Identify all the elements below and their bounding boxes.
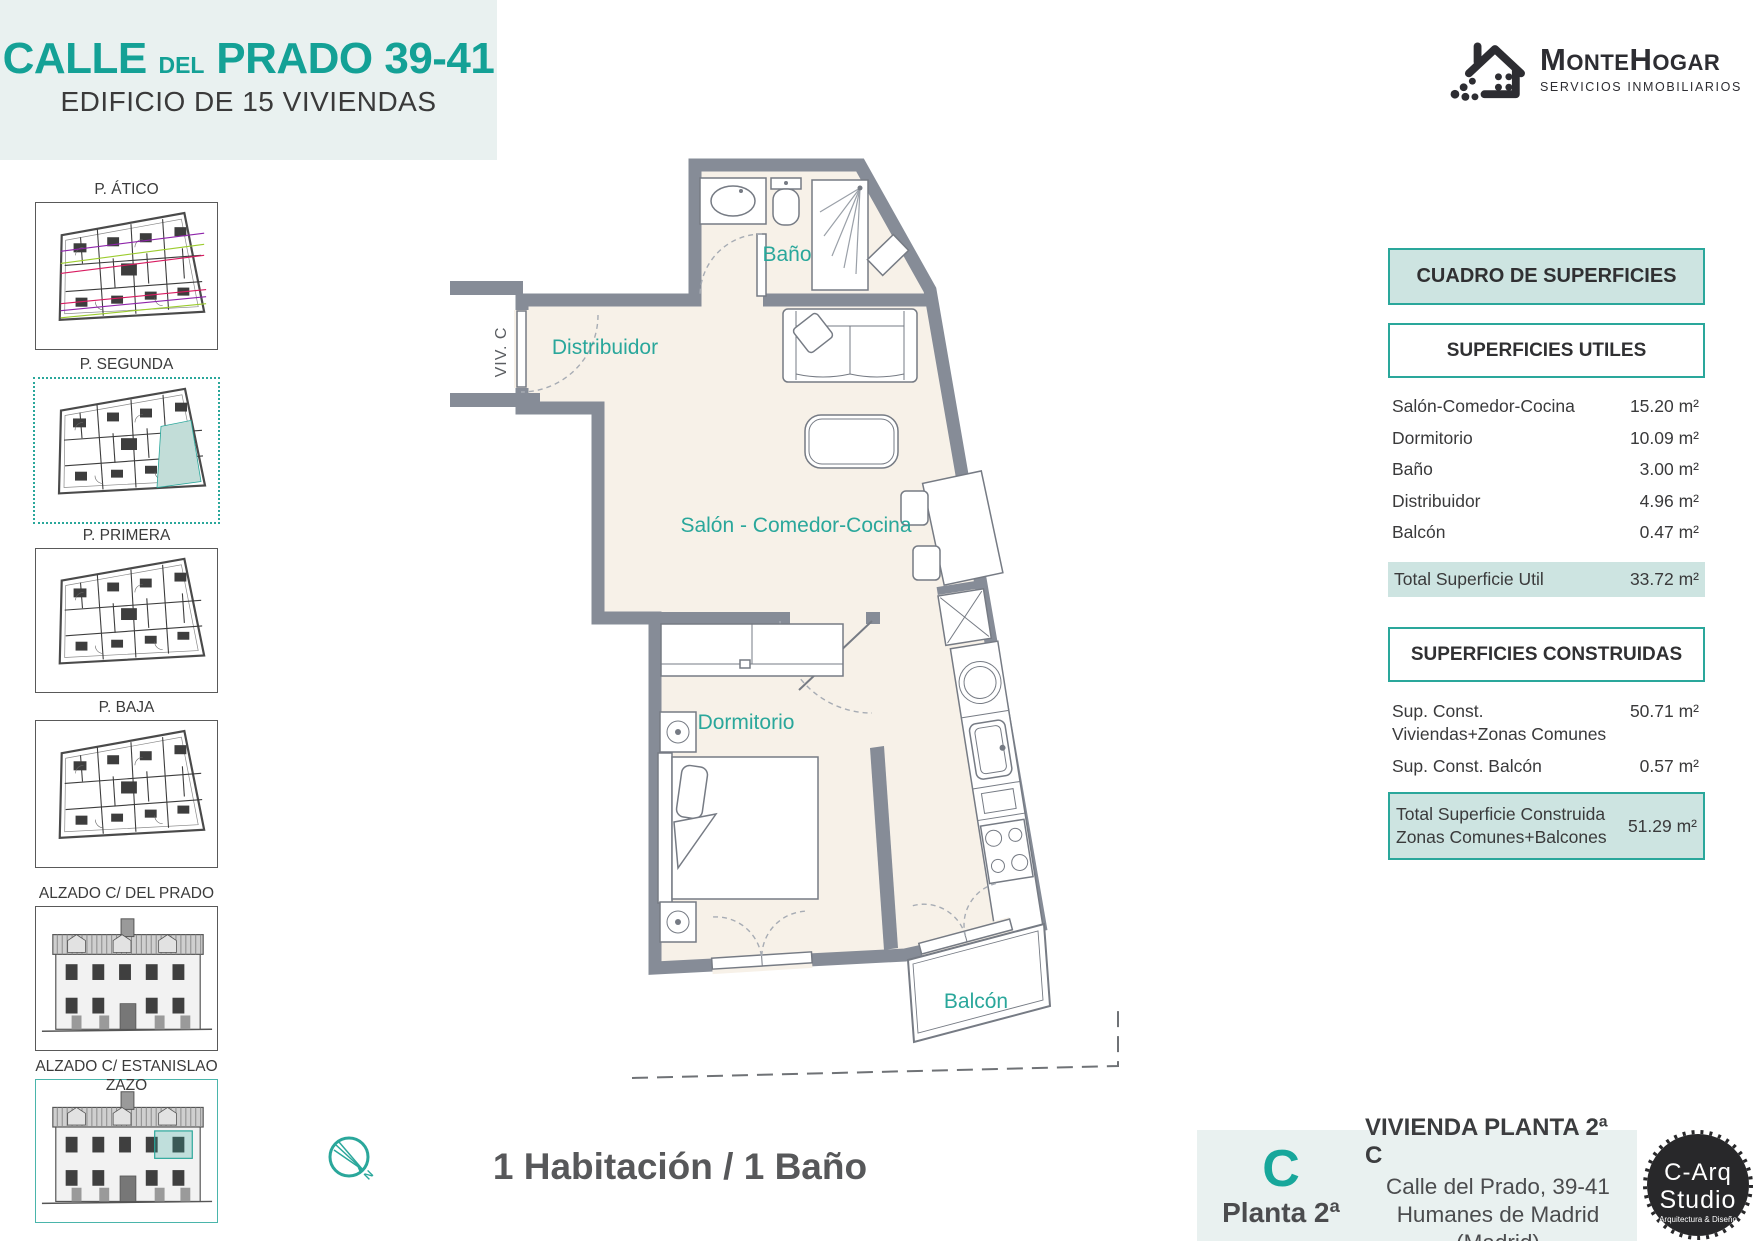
room-label-salon: Salón - Comedor-Cocina <box>680 514 911 537</box>
table-row: Distribuidor 4.96 m² <box>1388 491 1705 523</box>
sidebar-item-p-segunda: P. SEGUNDA <box>33 355 220 524</box>
studio-logo-line2: Studio <box>1660 1186 1737 1214</box>
total-construida-value: 51.29 m² <box>1628 816 1697 837</box>
total-util-value: 33.72 m² <box>1630 569 1699 590</box>
sidebar-item-alzado-del-prado: ALZADO C/ DEL PRADO <box>35 884 218 1051</box>
superficies-utiles-rows: Salón-Comedor-Cocina 15.20 m² Dormitorio… <box>1388 396 1705 554</box>
thumb-p-baja[interactable] <box>35 720 218 868</box>
brand-name-hogar: Hogar <box>1629 42 1720 77</box>
total-superficie-construida-row: Total Superficie Construida Zonas Comune… <box>1388 792 1705 860</box>
superficies-utiles-title: SUPERFICIES UTILES <box>1388 323 1705 378</box>
plan-thumbnail-primera <box>36 549 217 692</box>
address-line1: Calle del Prado, 39-41 <box>1386 1174 1610 1199</box>
address-line2: Humanes de Madrid (Madrid) <box>1397 1202 1600 1241</box>
title-calle: CALLE <box>3 34 147 83</box>
dwelling-title: VIVIENDA PLANTA 2ª C <box>1365 1114 1631 1170</box>
row-value: 0.57 m² <box>1640 756 1699 777</box>
wall-entry-stub-top <box>450 281 523 295</box>
elevation-thumbnail-zazo <box>36 1080 217 1222</box>
north-compass-icon: N <box>322 1132 380 1188</box>
nightstand <box>660 712 696 752</box>
thumb-label-p-atico: P. ÁTICO <box>35 180 218 199</box>
dwelling-letter-block: C Planta 2ª <box>1197 1130 1365 1241</box>
bed <box>658 753 818 903</box>
table-row: Salón-Comedor-Cocina 15.20 m² <box>1388 396 1705 428</box>
thumb-label-alzado-prado: ALZADO C/ DEL PRADO <box>35 884 218 903</box>
row-value: 15.20 m² <box>1630 396 1699 417</box>
title-del: DEL <box>158 52 204 78</box>
table-row: Baño 3.00 m² <box>1388 459 1705 491</box>
nightstand <box>660 902 696 942</box>
coffee-table <box>805 415 898 468</box>
row-label: Balcón <box>1392 522 1446 543</box>
sidebar-item-p-baja: P. BAJA <box>35 698 218 868</box>
thumb-label-p-primera: P. PRIMERA <box>35 526 218 545</box>
thumb-p-segunda-selected[interactable] <box>33 377 220 524</box>
row-label: Baño <box>1392 459 1433 480</box>
table-row: Dormitorio 10.09 m² <box>1388 428 1705 460</box>
elevation-thumbnail-prado <box>36 907 217 1050</box>
c-arq-studio-logo: C-Arq Studio Arquitectura & Diseño <box>1641 1128 1754 1241</box>
wall-door-stub <box>866 612 880 624</box>
thumb-label-alzado-zazo: ALZADO C/ ESTANISLAO ZAZO <box>35 1057 218 1076</box>
wardrobe <box>661 624 843 676</box>
room-label-balcon: Balcón <box>944 990 1008 1013</box>
montehogar-logo: MonteHogar SERVICIOS INMOBILIARIOS <box>1448 32 1742 106</box>
title-block: CALLE DEL PRADO 39-41 EDIFICIO DE 15 VIV… <box>0 0 497 160</box>
total-superficie-util-row: Total Superficie Util 33.72 m² <box>1388 562 1705 597</box>
superficies-construidas-rows: Sup. Const. Viviendas+Zonas Comunes 50.7… <box>1388 700 1705 787</box>
bathroom-sink <box>700 178 766 224</box>
house-icon <box>1448 32 1528 106</box>
dwelling-letter: C <box>1262 1143 1300 1195</box>
row-value: 10.09 m² <box>1630 428 1699 449</box>
thumb-alzado-prado[interactable] <box>35 906 218 1051</box>
dwelling-address: Calle del Prado, 39-41 Humanes de Madrid… <box>1365 1173 1631 1241</box>
table-row: Balcón 0.47 m² <box>1388 522 1705 554</box>
room-label-bano: Baño <box>762 243 811 266</box>
sidebar-item-p-primera: P. PRIMERA <box>35 526 218 693</box>
toilet <box>771 178 801 225</box>
studio-logo-line3: Arquitectura & Diseño <box>1659 1215 1737 1224</box>
plan-thumbnail-segunda <box>35 379 218 522</box>
rooms-summary: 1 Habitación / 1 Baño <box>480 1146 880 1188</box>
row-value: 3.00 m² <box>1640 459 1699 480</box>
thumb-p-primera[interactable] <box>35 548 218 693</box>
row-label: Sup. Const. Balcón <box>1392 756 1542 777</box>
shower <box>812 180 868 290</box>
dwelling-address-block: VIVIENDA PLANTA 2ª C Calle del Prado, 39… <box>1365 1130 1637 1241</box>
total-util-label: Total Superficie Util <box>1394 569 1544 590</box>
thumb-label-p-baja: P. BAJA <box>35 698 218 717</box>
room-label-distribuidor: Distribuidor <box>552 336 658 359</box>
sidebar-item-p-atico: P. ÁTICO <box>35 180 218 350</box>
unit-label-viv-c: VIV. C <box>493 327 510 378</box>
superficies-construidas-title: SUPERFICIES CONSTRUIDAS <box>1388 627 1705 682</box>
row-label: Dormitorio <box>1392 428 1473 449</box>
dwelling-info-panel: C Planta 2ª VIVIENDA PLANTA 2ª C Calle d… <box>1197 1130 1637 1241</box>
property-boundary-dashed <box>632 1006 1118 1078</box>
total-construida-label-line1: Total Superficie Construida <box>1396 804 1605 824</box>
wall-entry-stub-bottom <box>450 393 540 407</box>
row-value: 50.71 m² <box>1630 700 1699 723</box>
brand-tagline: SERVICIOS INMOBILIARIOS <box>1540 80 1742 94</box>
brand-name-monte: Monte <box>1540 42 1629 77</box>
page-subtitle: EDIFICIO DE 15 VIVIENDAS <box>0 86 497 118</box>
plan-thumbnail-atico <box>36 203 217 349</box>
sofa <box>783 309 917 382</box>
thumb-p-atico[interactable] <box>35 202 218 350</box>
title-prado: PRADO 39-41 <box>216 34 494 83</box>
table-row: Sup. Const. Viviendas+Zonas Comunes 50.7… <box>1388 700 1705 752</box>
row-label: Distribuidor <box>1392 491 1481 512</box>
dwelling-floor: Planta 2ª <box>1222 1197 1340 1229</box>
wall-bath-salon <box>763 294 937 307</box>
studio-logo-line1: C-Arq <box>1664 1159 1732 1186</box>
table-row: Sup. Const. Balcón 0.57 m² <box>1388 756 1705 787</box>
total-construida-label: Total Superficie Construida Zonas Comune… <box>1396 803 1607 849</box>
total-construida-label-line2: Zonas Comunes+Balcones <box>1396 827 1607 847</box>
thumb-alzado-zazo[interactable] <box>35 1079 218 1223</box>
thumb-label-p-segunda: P. SEGUNDA <box>33 355 220 374</box>
row-label: Sup. Const. Viviendas+Zonas Comunes <box>1392 700 1612 746</box>
row-value: 4.96 m² <box>1640 491 1699 512</box>
plan-thumbnail-baja <box>36 721 217 867</box>
room-label-dormitorio: Dormitorio <box>698 711 795 734</box>
entry-door-leaf <box>517 311 526 387</box>
row-label: Salón-Comedor-Cocina <box>1392 396 1575 417</box>
surfaces-panel-title: CUADRO DE SUPERFICIES <box>1388 248 1705 305</box>
page-title: CALLE DEL PRADO 39-41 <box>0 36 497 82</box>
row-value: 0.47 m² <box>1640 522 1699 543</box>
sidebar-item-alzado-estanislao-zazo: ALZADO C/ ESTANISLAO ZAZO <box>35 1057 218 1223</box>
dining-chair <box>913 546 940 580</box>
wall-salon-dormitorio <box>592 612 790 624</box>
floorplan: Baño Distribuidor Salón - Comedor-Cocina… <box>430 130 1140 1090</box>
brand-name: MonteHogar <box>1540 44 1720 75</box>
